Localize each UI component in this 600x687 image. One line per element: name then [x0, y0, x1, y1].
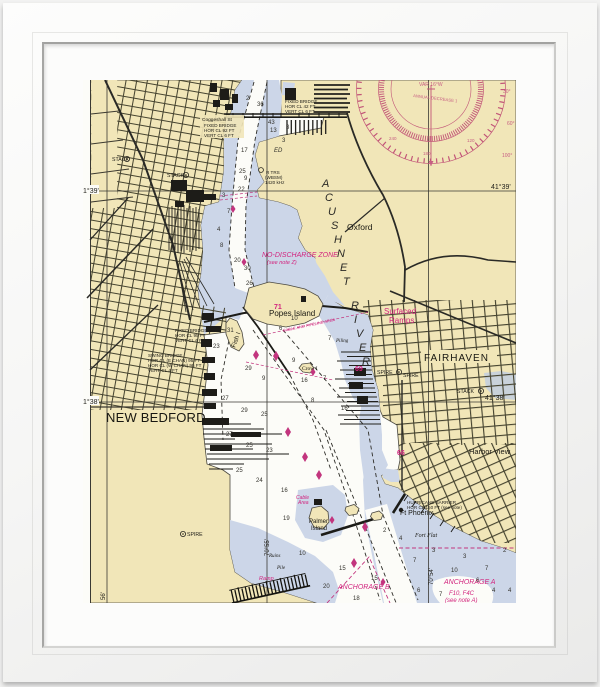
svg-text:Ramps: Ramps	[389, 316, 414, 325]
svg-text:23: 23	[266, 448, 273, 454]
svg-text:R: R	[362, 356, 370, 368]
svg-text:36: 36	[257, 102, 264, 108]
svg-text:Ramp: Ramp	[259, 576, 274, 582]
svg-text:1°38': 1°38'	[83, 398, 99, 406]
svg-text:25: 25	[261, 412, 268, 418]
svg-text:Piling: Piling	[335, 339, 349, 344]
svg-text:10: 10	[451, 568, 458, 574]
svg-text:S: S	[331, 220, 339, 232]
svg-text:Surfaced: Surfaced	[384, 307, 416, 316]
svg-text:16: 16	[301, 378, 308, 384]
svg-text:Island: Island	[311, 526, 327, 532]
svg-text:70°55': 70°55'	[265, 539, 271, 556]
svg-text:41°38': 41°38'	[485, 394, 505, 402]
svg-text:27: 27	[222, 396, 229, 402]
svg-text:VERT CL 6 FT: VERT CL 6 FT	[204, 133, 234, 138]
svg-text:R: R	[351, 300, 359, 312]
svg-text:C: C	[325, 192, 333, 204]
svg-text:15: 15	[371, 576, 378, 582]
svg-text:Fort Flat: Fort Flat	[414, 533, 437, 539]
svg-text:A: A	[321, 178, 329, 190]
svg-text:18: 18	[353, 596, 360, 602]
svg-text:VERT CL 6 FT: VERT CL 6 FT	[285, 109, 315, 114]
svg-text:15: 15	[339, 566, 346, 572]
svg-text:20: 20	[234, 258, 241, 264]
svg-text:23: 23	[213, 344, 220, 350]
svg-text:70°54': 70°54'	[429, 568, 435, 585]
svg-text:STACK: STACK	[167, 173, 184, 179]
svg-text:29: 29	[241, 408, 248, 414]
svg-text:FAIRHAVEN: FAIRHAVEN	[424, 353, 489, 364]
svg-text:180: 180	[423, 151, 431, 156]
svg-text:10: 10	[299, 551, 306, 557]
svg-text:(see note A): (see note A)	[445, 598, 477, 603]
svg-text:26: 26	[246, 281, 253, 287]
svg-text:Harbor View: Harbor View	[469, 447, 511, 456]
svg-text:20: 20	[323, 584, 330, 590]
svg-text:H: H	[334, 234, 342, 246]
svg-text:17: 17	[241, 148, 248, 154]
svg-text:I: I	[354, 314, 357, 326]
svg-text:56': 56'	[101, 592, 107, 600]
svg-text:NEW BEDFORD: NEW BEDFORD	[106, 410, 206, 425]
svg-text:240: 240	[389, 136, 397, 141]
svg-text:25: 25	[236, 468, 243, 474]
svg-text:ED: ED	[274, 148, 283, 154]
svg-text:10: 10	[291, 316, 298, 322]
svg-text:19: 19	[283, 516, 290, 522]
svg-text:16: 16	[281, 488, 288, 494]
svg-text:25: 25	[246, 443, 253, 449]
svg-text:27: 27	[226, 432, 233, 438]
svg-text:25: 25	[239, 169, 246, 175]
svg-text:1420 kHz: 1420 kHz	[265, 180, 285, 185]
svg-text:13: 13	[270, 128, 277, 134]
svg-text:(see note Z): (see note Z)	[267, 260, 297, 266]
svg-text:43: 43	[268, 120, 275, 126]
svg-text:66: 66	[397, 450, 405, 457]
svg-text:30: 30	[244, 266, 251, 272]
svg-text:ANCHORAGE A: ANCHORAGE A	[443, 579, 496, 586]
svg-text:Crow I: Crow I	[302, 366, 318, 372]
svg-text:31: 31	[227, 328, 234, 334]
svg-text:N: N	[337, 248, 345, 260]
svg-text:E: E	[340, 262, 348, 274]
svg-text:STACK: STACK	[112, 157, 129, 163]
svg-text:U: U	[328, 206, 336, 218]
svg-text:16: 16	[341, 406, 348, 412]
svg-text:VERT CL 4 FT: VERT CL 4 FT	[148, 368, 178, 373]
svg-text:60°: 60°	[507, 121, 515, 127]
svg-text:120: 120	[467, 138, 475, 143]
svg-text:ANCHORAGE B: ANCHORAGE B	[337, 584, 390, 591]
svg-text:100°: 100°	[502, 153, 512, 159]
svg-text:Pile: Pile	[276, 566, 286, 571]
svg-text:Palmer: Palmer	[309, 519, 328, 525]
svg-text:30°: 30°	[503, 89, 511, 95]
svg-text:Oxford: Oxford	[347, 222, 373, 232]
svg-text:NO-DISCHARGE ZONE: NO-DISCHARGE ZONE	[262, 252, 338, 259]
svg-text:29: 29	[245, 366, 252, 372]
svg-text:HOR CL 150 FT (see note): HOR CL 150 FT (see note)	[407, 505, 462, 510]
svg-text:SPIRE: SPIRE	[377, 370, 393, 376]
svg-text:22: 22	[238, 187, 245, 193]
svg-text:F10, F4C: F10, F4C	[449, 591, 475, 597]
svg-text:STACK: STACK	[457, 389, 474, 395]
svg-text:SPIRE: SPIRE	[187, 532, 203, 538]
svg-text:Area: Area	[297, 500, 309, 506]
svg-text:E: E	[359, 342, 367, 354]
svg-text:24: 24	[256, 478, 263, 484]
svg-text:41°39': 41°39'	[491, 183, 511, 191]
svg-text:1°39': 1°39'	[83, 187, 99, 195]
svg-text:Ft Phoenix: Ft Phoenix	[400, 510, 434, 517]
svg-text:VERT CL 6 FT: VERT CL 6 FT	[175, 338, 205, 343]
svg-text:VAR 16°W: VAR 16°W	[419, 82, 443, 88]
svg-text:SPIRE: SPIRE	[403, 373, 419, 379]
